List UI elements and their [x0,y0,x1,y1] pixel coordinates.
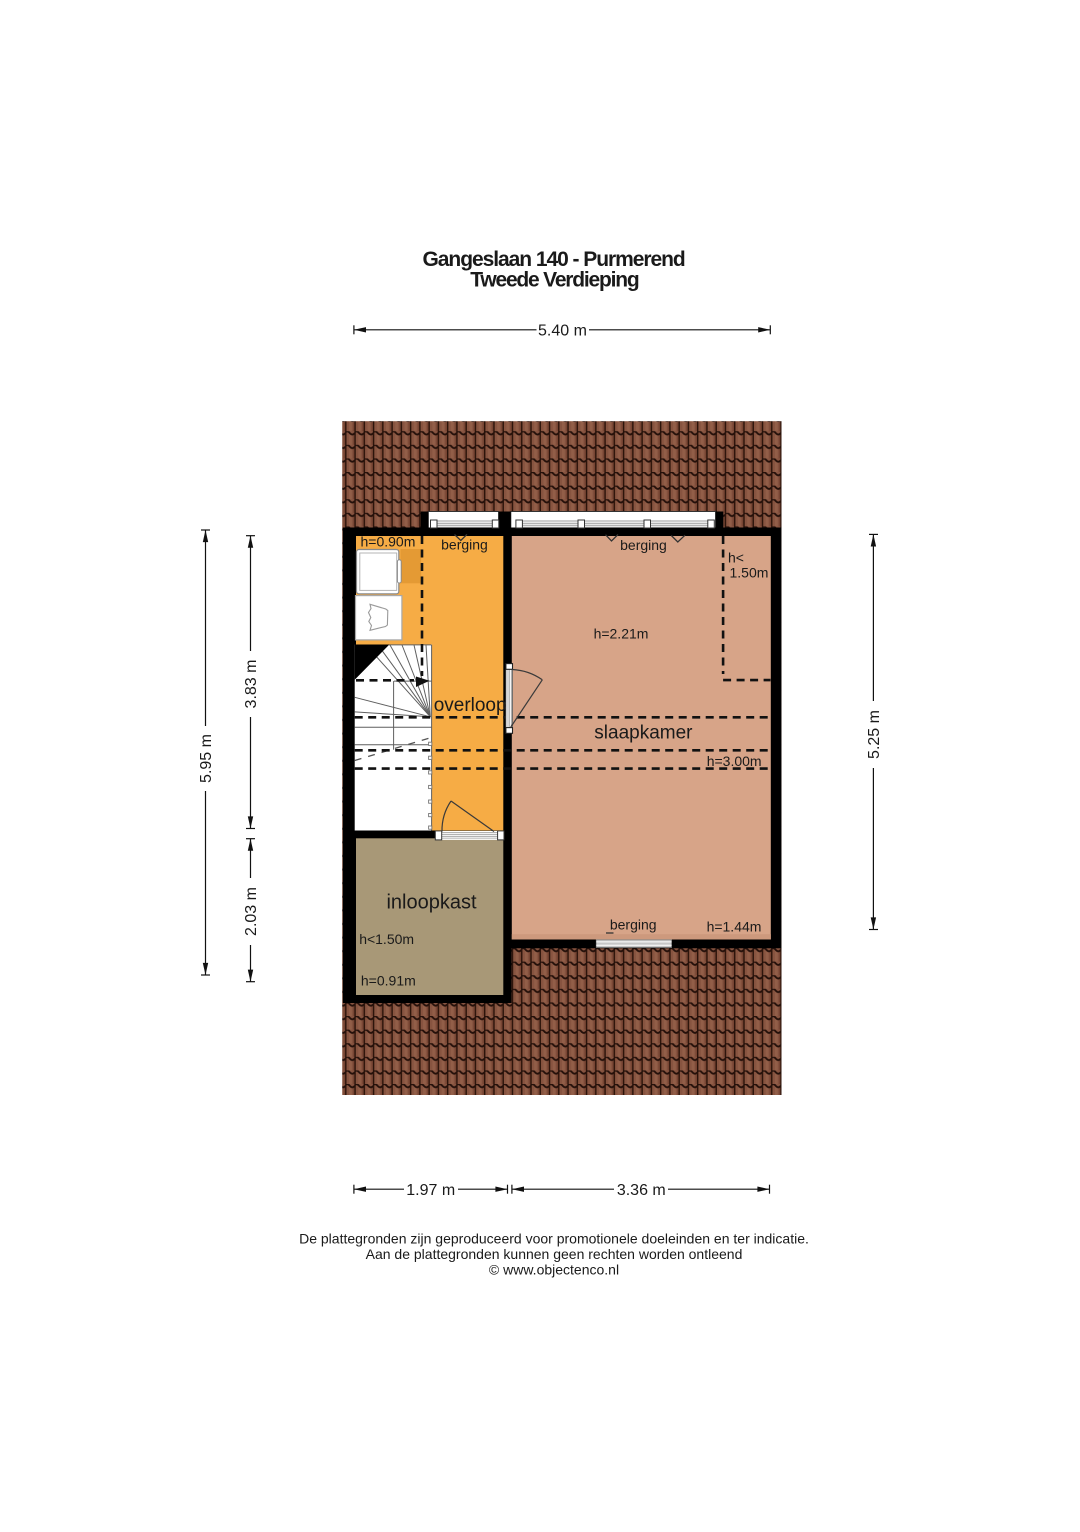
svg-text:Aan de plattegronden kunnen ge: Aan de plattegronden kunnen geen rechten… [366,1246,743,1262]
svg-text:Gangeslaan 140 - Purmerend: Gangeslaan 140 - Purmerend [423,248,685,271]
svg-text:h<: h< [728,550,744,566]
svg-text:5.95 m: 5.95 m [198,734,215,783]
svg-text:h=0.90m: h=0.90m [361,534,416,550]
svg-text:Tweede Verdieping: Tweede Verdieping [470,269,639,292]
svg-text:h<1.50m: h<1.50m [359,931,414,947]
svg-text:inloopkast: inloopkast [386,892,477,914]
svg-text:h=0.91m: h=0.91m [361,973,416,989]
svg-text:© www.objectenco.nl: © www.objectenco.nl [489,1262,619,1278]
svg-text:berging: berging [441,537,488,553]
svg-text:2.03 m: 2.03 m [243,887,260,936]
svg-text:De plattegronden zijn geproduc: De plattegronden zijn geproduceerd voor … [299,1231,809,1247]
svg-text:h=3.00m: h=3.00m [707,753,762,769]
svg-text:berging: berging [610,917,657,933]
svg-text:slaapkamer: slaapkamer [594,723,693,744]
svg-text:overloop: overloop [434,695,507,716]
svg-text:3.36 m: 3.36 m [617,1182,666,1199]
svg-text:1.50m: 1.50m [730,565,769,581]
svg-text:h=2.21m: h=2.21m [594,625,649,641]
svg-text:3.83 m: 3.83 m [243,660,260,709]
svg-text:h=1.44m: h=1.44m [707,918,762,934]
svg-text:berging: berging [620,537,667,553]
svg-text:5.40 m: 5.40 m [538,323,587,340]
svg-text:1.97 m: 1.97 m [406,1182,455,1199]
svg-text:5.25 m: 5.25 m [866,710,883,759]
